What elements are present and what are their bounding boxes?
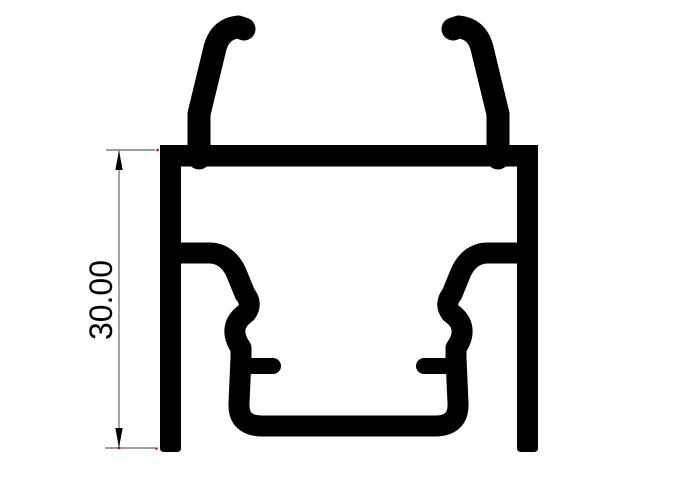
endpoint-marker-bottom [155,447,158,450]
dimension-label: 30.00 [83,260,119,340]
endpoint-marker-arrow-bottom [118,447,121,450]
profile-drawing: 30.00 [0,0,700,491]
endpoint-marker-top [156,149,159,152]
drawing-canvas: 30.00 [0,0,700,491]
